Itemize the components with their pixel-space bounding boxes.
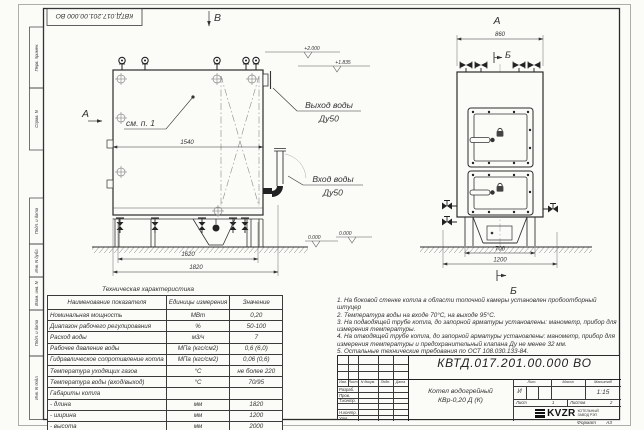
staff-utv: Утв. <box>339 416 349 421</box>
table-row: Температура уходящих газов°Сне более 220 <box>48 365 283 376</box>
param-name: Температура уходящих газов <box>48 365 167 376</box>
dim-1620-label: 1620 <box>181 252 195 258</box>
sheet-label: Лист <box>516 400 527 405</box>
param-name: Расход воды <box>48 332 167 343</box>
table-row: Диапазон рабочего регулирования%50-100 <box>48 321 283 332</box>
param-value: 7 <box>230 332 283 343</box>
ground-front <box>92 247 308 253</box>
elev-2000-label: +2.000 <box>304 46 320 52</box>
product-line1: Котел водогрейный <box>408 387 513 396</box>
table-row: - ширинамм1200 <box>48 410 283 421</box>
field-podp-data-2: Подп. и дата <box>34 319 39 346</box>
elevation-zero-front: 0.000 <box>305 235 338 247</box>
side-view: А 860 Б <box>336 15 592 297</box>
param-unit: °С <box>166 365 230 376</box>
param-unit: % <box>166 321 230 332</box>
param-name: - длина <box>48 399 167 410</box>
col-header-units: Единицы измерения <box>166 296 230 310</box>
elevation-plus1835: +1.835 <box>298 60 370 72</box>
outlet-dn: Ду50 <box>318 114 339 124</box>
lit-label: Лит. <box>513 380 551 384</box>
outlet-flange <box>263 71 271 89</box>
view-marker-a-side: А <box>492 15 500 27</box>
staff-razrab: Разраб. <box>339 387 354 392</box>
col-header-name: Наименование показателя <box>48 296 167 310</box>
door-upper <box>468 108 533 167</box>
inlet-pipe <box>263 149 306 195</box>
sheet-value: 1 <box>552 400 554 405</box>
side-bracket-1 <box>107 140 113 148</box>
param-unit: °С <box>166 377 230 388</box>
rev-col-izm: Изм. <box>338 380 348 384</box>
top-stamp: КВТД.017.201.00.000 ВО <box>47 9 142 26</box>
kvzr-logo-icon <box>535 409 545 418</box>
field-vzam-inv: Взам. инв. N <box>34 280 39 305</box>
ground-side <box>420 247 592 253</box>
table-row: Температура воды (вход/выход)°С70/95 <box>48 377 283 388</box>
section-marker-b-bottom: Б <box>497 270 517 297</box>
param-value <box>230 388 283 399</box>
elevation-plus2000: +2.000 <box>265 46 340 58</box>
elevation-zero-side: 0.000 <box>336 231 372 243</box>
lit-value: И <box>513 389 526 395</box>
outlet-callout: Выход воды Ду50 <box>273 88 361 124</box>
elev-zero-front-label: 0.000 <box>308 235 321 241</box>
view-marker-v: В <box>209 11 221 26</box>
table-row: - высотамм2000 <box>48 421 283 430</box>
staff-nkontr: Н.контр. <box>339 410 357 415</box>
param-unit: МПа (кгс/см2) <box>166 343 230 354</box>
dim-1820-label: 1820 <box>189 265 203 271</box>
front-view: В А см. п. <box>81 11 370 276</box>
outlet-label: Выход воды <box>305 100 354 110</box>
param-value: 1820 <box>230 399 283 410</box>
dim-700-label: 700 <box>495 247 506 253</box>
view-marker-a-front-label: А <box>81 108 89 120</box>
note-item: 4. На отводящей трубе котла, до запорной… <box>337 333 621 348</box>
view-marker-v-label: В <box>214 12 221 24</box>
rev-col-ndoc: N докум. <box>358 380 378 384</box>
param-value: 0,6 (6,0) <box>230 343 283 354</box>
param-name: Габариты котла <box>48 388 167 399</box>
scale-value: 1:15 <box>585 389 621 396</box>
dim-1200-label: 1200 <box>493 258 507 264</box>
note-item: 1. На боковой стенке котла в области топ… <box>337 297 621 312</box>
staff-tkontr: Т.контр. <box>339 398 356 403</box>
param-value: 0,06 (0,6) <box>230 354 283 365</box>
support-frame-front <box>113 219 263 247</box>
param-value: 50-100 <box>230 321 283 332</box>
rev-col-list: Лист <box>348 380 358 384</box>
kvzr-logo-subtext: КОТЕЛЬНЫЙ ЗАВОД РЭП <box>578 410 599 418</box>
param-name: Гидравлическое сопротивление котла <box>48 354 167 365</box>
title-block: Изм. Лист N докум. Подп. Дата Разраб. Пр… <box>337 355 620 420</box>
param-value: 1200 <box>230 410 283 421</box>
param-unit: МПа (кгс/см2) <box>166 354 230 365</box>
dim-1620: 1620 <box>118 222 258 263</box>
param-name: - высота <box>48 421 167 430</box>
param-unit: МВт <box>166 310 230 321</box>
inlet-dn: Ду50 <box>322 188 343 198</box>
elev-zero-side-label: 0.000 <box>339 231 352 237</box>
param-unit: мм <box>166 421 230 430</box>
note-item: 2. Температура воды на входе 70°С, на вы… <box>337 312 621 319</box>
elev-1835-label: +1.835 <box>335 60 351 66</box>
param-name: - ширина <box>48 410 167 421</box>
callout-see-note-label: см. п. 1 <box>126 118 155 128</box>
view-marker-a-front: А <box>81 108 102 121</box>
rev-col-podp: Подп. <box>378 380 393 384</box>
col-header-value: Значение <box>230 296 283 310</box>
table-header-row: Наименование показателя Единицы измерени… <box>48 296 283 310</box>
sheets-label: Листов <box>570 400 585 405</box>
document-number: КВТД.017.201.00.000 ВО <box>408 356 621 379</box>
param-unit: мм <box>166 399 230 410</box>
dim-860-label: 860 <box>495 32 506 38</box>
rev-col-data: Дата <box>393 380 408 384</box>
margin-field-labels: Перв. примен. Справ. N Подп. и дата Инв.… <box>34 44 39 400</box>
param-value: не более 220 <box>230 365 283 376</box>
param-value: 0,20 <box>230 310 283 321</box>
param-unit: м3/ч <box>166 332 230 343</box>
table-row: - длинамм1820 <box>48 399 283 410</box>
kvzr-sub-line2: ЗАВОД РЭП <box>578 414 599 418</box>
dim-860: 860 <box>457 32 543 66</box>
param-name: Температура воды (вход/выход) <box>48 377 167 388</box>
field-inv-podl: Инв. N подл. <box>34 375 39 399</box>
param-unit: мм <box>166 410 230 421</box>
drawing-sheet: Перв. примен. Справ. N Подп. и дата Инв.… <box>0 0 644 430</box>
kvzr-logo: KVZR КОТЕЛЬНЫЙ ЗАВОД РЭП <box>513 406 621 421</box>
field-sprav-n: Справ. N <box>34 109 39 127</box>
drain-valve <box>213 225 220 232</box>
section-marker-b-top: Б <box>494 50 511 63</box>
format-strip: Формат А3 <box>577 421 612 426</box>
kvzr-logo-text: KVZR <box>547 408 575 419</box>
param-name: Рабочее давление воды <box>48 343 167 354</box>
top-valves-front <box>119 57 259 70</box>
table-row: Гидравлическое сопротивление котлаМПа (к… <box>48 354 283 365</box>
section-b-top-label: Б <box>505 50 511 60</box>
tech-table-title: Техническая характеристика <box>47 286 249 293</box>
table-row: Номинальная мощностьМВт0,20 <box>48 310 283 321</box>
bottom-valves-front <box>116 218 249 233</box>
door-lower <box>468 171 533 215</box>
staff-prov: Пров. <box>339 393 350 398</box>
param-value: 2000 <box>230 421 283 430</box>
sheets-value: 2 <box>610 400 612 405</box>
table-row: Расход водым3/ч7 <box>48 332 283 343</box>
note-item: 3. На подводящей трубе котла, до запорно… <box>337 319 621 334</box>
param-value: 70/95 <box>230 377 283 388</box>
table-row: Рабочее давление водыМПа (кгс/см2)0,6 (6… <box>48 343 283 354</box>
table-row: Габариты котла <box>48 388 283 399</box>
format-label: Формат <box>577 421 596 426</box>
format-value: А3 <box>606 421 612 426</box>
param-unit <box>166 388 230 399</box>
scale-label: Масштаб <box>585 380 621 384</box>
product-name: Котел водогрейный КВр-0,20 Д (К) <box>408 379 513 421</box>
dim-1540-label: 1540 <box>180 140 194 146</box>
inlet-callout: Вход воды Ду50 <box>288 174 363 198</box>
field-inv-dubl: Инв. N дубл. <box>34 248 39 272</box>
product-line2: КВр-0,20 Д (К) <box>408 396 513 405</box>
field-podp-data-1: Подп. и дата <box>34 207 39 234</box>
param-name: Номинальная мощность <box>48 310 167 321</box>
field-perv-primen: Перв. примен. <box>34 44 39 72</box>
dim-1820: 1820 <box>113 205 278 276</box>
inlet-label: Вход воды <box>312 174 354 184</box>
side-bracket-2 <box>107 180 113 188</box>
param-name: Диапазон рабочего регулирования <box>48 321 167 332</box>
stamp-text: КВТД.017.201.00.000 ВО <box>55 12 133 19</box>
section-b-bottom-label: Б <box>510 285 517 297</box>
technical-notes: 1. На боковой стенке котла в области топ… <box>337 297 621 355</box>
tech-table: Наименование показателя Единицы измерени… <box>47 295 283 430</box>
mass-label: Масса <box>551 380 585 384</box>
